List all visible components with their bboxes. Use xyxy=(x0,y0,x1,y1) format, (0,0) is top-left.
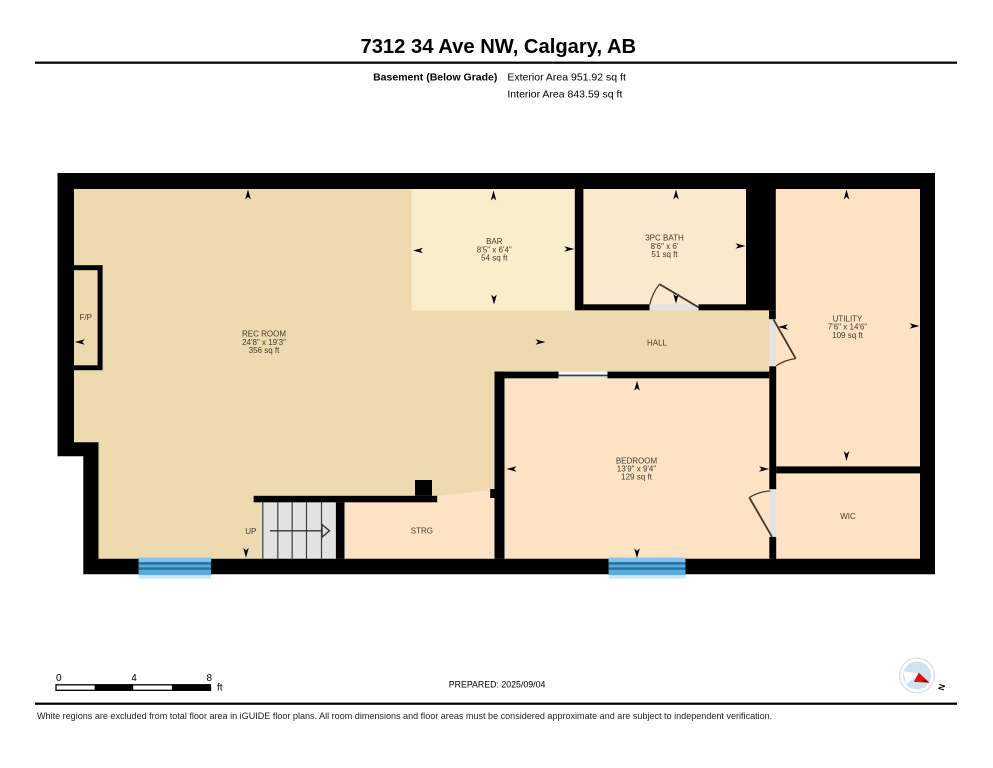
svg-text:8: 8 xyxy=(207,673,213,684)
svg-text:Exterior Area 951.92 sq ft: Exterior Area 951.92 sq ft xyxy=(507,71,626,83)
svg-text:0: 0 xyxy=(56,673,62,684)
svg-text:Interior Area 843.59 sq ft: Interior Area 843.59 sq ft xyxy=(507,88,622,100)
svg-text:HALL: HALL xyxy=(647,338,668,347)
svg-text:129 sq ft: 129 sq ft xyxy=(621,473,652,482)
svg-text:51 sq ft: 51 sq ft xyxy=(651,250,678,259)
svg-text:STRG: STRG xyxy=(411,527,433,536)
svg-text:356 sq ft: 356 sq ft xyxy=(249,346,280,355)
svg-text:WIC: WIC xyxy=(840,512,856,521)
svg-text:Basement (Below Grade): Basement (Below Grade) xyxy=(373,71,497,83)
svg-text:F/P: F/P xyxy=(79,313,91,322)
svg-text:7312 34 Ave NW, Calgary, AB: 7312 34 Ave NW, Calgary, AB xyxy=(360,36,636,58)
svg-text:PREPARED: 2025/09/04: PREPARED: 2025/09/04 xyxy=(449,680,546,690)
svg-text:ft: ft xyxy=(217,683,223,694)
svg-text:4: 4 xyxy=(131,673,137,684)
svg-text:White regions are excluded fro: White regions are excluded from total fl… xyxy=(37,711,772,721)
svg-text:54 sq ft: 54 sq ft xyxy=(481,254,508,263)
svg-text:UP: UP xyxy=(245,527,256,536)
svg-text:109 sq ft: 109 sq ft xyxy=(832,331,863,340)
